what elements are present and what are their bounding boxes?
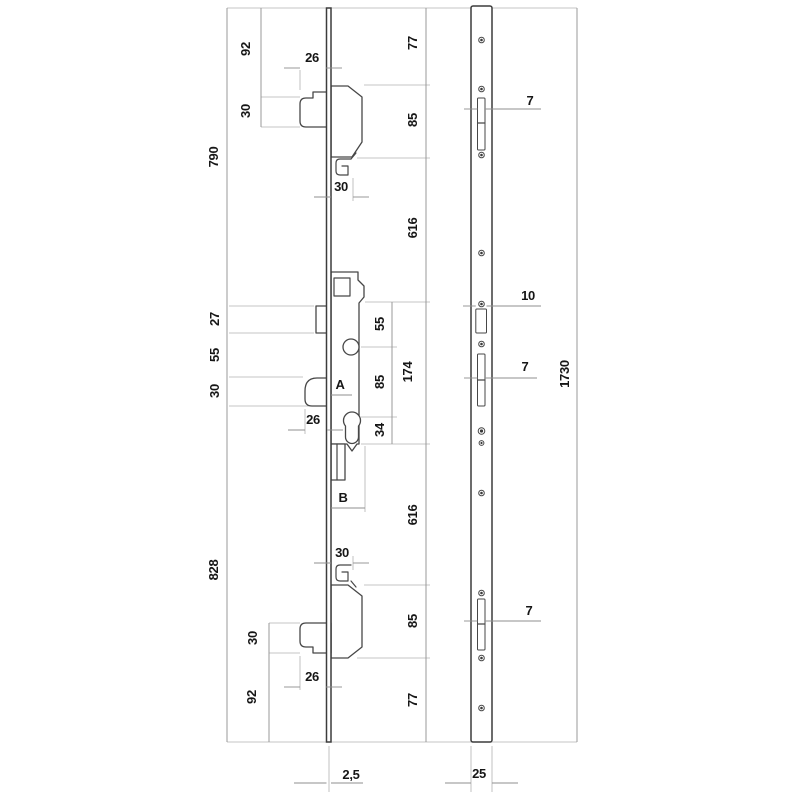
- dim-label-85-inner: 85: [372, 375, 387, 389]
- dim-label-30-top-h: 30: [334, 179, 348, 194]
- keeper-slot-top: [478, 98, 486, 150]
- dim-label-616-top: 616: [405, 218, 420, 239]
- dim-label-7-top: 7: [527, 93, 534, 108]
- top-hook-detail-icon: [336, 159, 351, 175]
- multipoint-lock-drawing: 790 92 30 26 77 85 30 616 27 55 30 55 85…: [0, 0, 800, 800]
- dim-label-85-bot: 85: [405, 614, 420, 628]
- extension-lines: [227, 8, 577, 792]
- dim-label-92-top: 92: [238, 42, 253, 56]
- bottom-hook-case: [331, 585, 362, 658]
- dim-label-828: 828: [206, 560, 221, 581]
- dimension-lines: [227, 8, 577, 783]
- bottom-hook-detail-icon: [336, 565, 351, 581]
- dim-label-1730: 1730: [557, 360, 572, 388]
- rod-bracket: [331, 444, 345, 480]
- strike-plate-view: [471, 6, 492, 742]
- dim-label-92-bot: 92: [244, 690, 259, 704]
- dim-label-B: B: [338, 490, 347, 505]
- dim-label-7-mid: 7: [522, 359, 529, 374]
- dim-label-55-left: 55: [207, 348, 222, 362]
- dim-label-30-left: 30: [207, 384, 222, 398]
- dim-label-34: 34: [372, 422, 387, 437]
- dim-label-616-bot: 616: [405, 505, 420, 526]
- dim-label-26-mid: 26: [306, 412, 320, 427]
- top-hook-case: [331, 86, 362, 157]
- dim-label-55-inner: 55: [372, 317, 387, 331]
- lock-view: [300, 8, 364, 742]
- dim-label-30-bot-left: 30: [245, 631, 260, 645]
- dim-label-10: 10: [521, 288, 535, 303]
- dim-label-30-top-left: 30: [238, 104, 253, 118]
- technical-drawing-page: 790 92 30 26 77 85 30 616 27 55 30 55 85…: [0, 0, 800, 800]
- faceplate: [327, 8, 332, 742]
- dim-label-A: A: [335, 377, 345, 392]
- euro-cylinder-hole: [344, 412, 361, 443]
- dim-label-2-5: 2,5: [342, 767, 359, 782]
- dim-label-85-top: 85: [405, 113, 420, 127]
- dim-label-26-bot: 26: [305, 669, 319, 684]
- dim-label-30-bot-h: 30: [335, 545, 349, 560]
- dim-label-27: 27: [207, 312, 222, 326]
- dim-label-790: 790: [206, 147, 221, 168]
- dim-label-7-bot: 7: [526, 603, 533, 618]
- keeper-slot-latch: [476, 309, 487, 333]
- dim-label-174: 174: [400, 361, 415, 383]
- dimension-labels: 790 92 30 26 77 85 30 616 27 55 30 55 85…: [206, 36, 572, 782]
- dim-label-77-bot: 77: [405, 693, 420, 707]
- dim-label-26-top: 26: [305, 50, 319, 65]
- follower-hole: [343, 339, 359, 355]
- dim-label-77-top: 77: [405, 36, 420, 50]
- dim-label-25: 25: [472, 766, 486, 781]
